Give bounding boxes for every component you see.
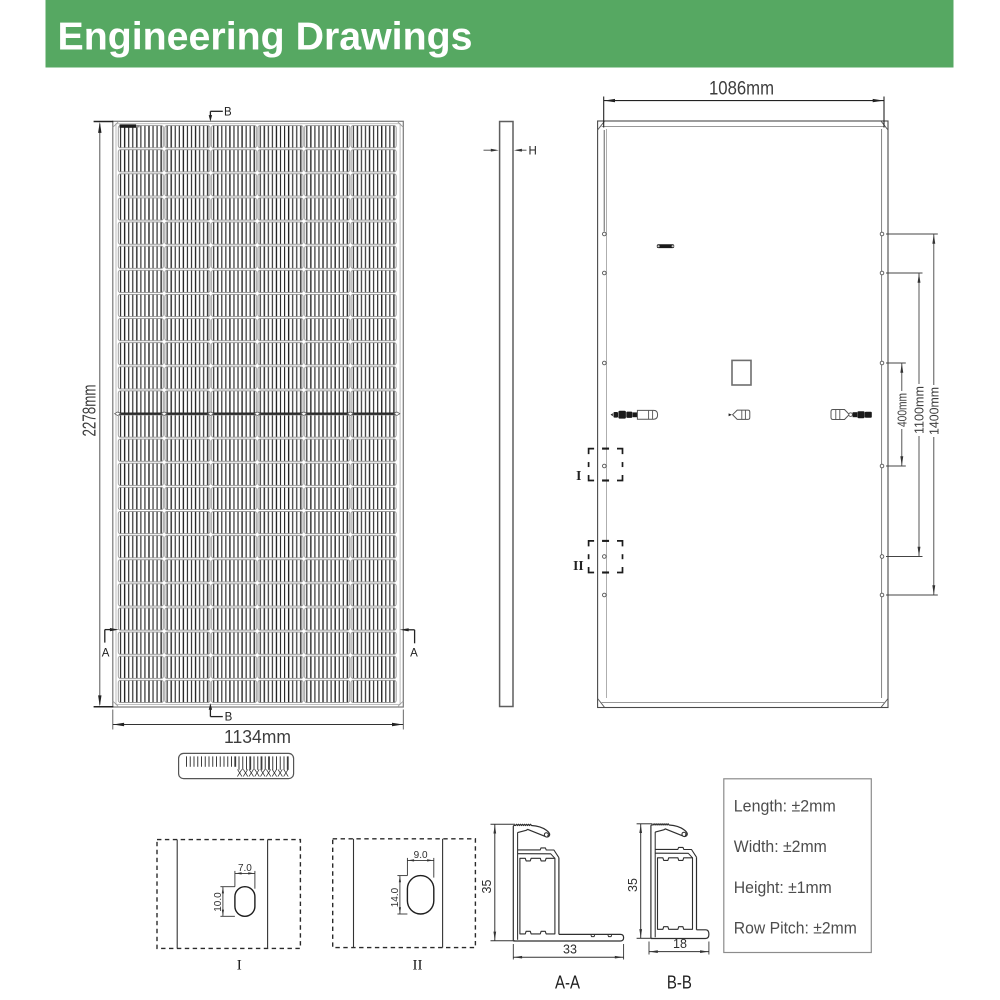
svg-text:2278mm: 2278mm [80, 385, 100, 437]
svg-text:14.0: 14.0 [390, 887, 401, 907]
svg-text:1134mm: 1134mm [224, 726, 291, 747]
svg-text:18: 18 [673, 937, 687, 951]
svg-text:7.0: 7.0 [238, 863, 252, 874]
svg-text:Height: ±1mm: Height: ±1mm [734, 878, 832, 897]
svg-text:10.0: 10.0 [213, 892, 224, 912]
svg-text:A-A: A-A [555, 973, 580, 993]
svg-text:B: B [224, 106, 232, 118]
svg-text:I: I [576, 468, 581, 483]
svg-text:II: II [413, 958, 423, 974]
svg-text:B-B: B-B [667, 973, 692, 993]
svg-text:Engineering Drawings: Engineering Drawings [58, 16, 473, 59]
svg-text:XXXXXXXXX: XXXXXXXXX [237, 769, 289, 780]
svg-text:I: I [237, 958, 242, 974]
svg-text:1086mm: 1086mm [709, 79, 774, 100]
svg-text:Row Pitch: ±2mm: Row Pitch: ±2mm [734, 919, 857, 938]
svg-text:B: B [225, 711, 233, 723]
svg-text:Width: ±2mm: Width: ±2mm [734, 837, 827, 856]
svg-text:H: H [529, 146, 537, 158]
svg-text:9.0: 9.0 [414, 850, 428, 861]
svg-text:35: 35 [480, 880, 494, 894]
svg-text:33: 33 [563, 942, 577, 956]
svg-text:1100mm: 1100mm [913, 386, 927, 434]
svg-text:400mm: 400mm [895, 393, 909, 427]
svg-text:1400mm: 1400mm [927, 387, 941, 435]
svg-text:II: II [573, 558, 584, 573]
svg-text:A: A [102, 647, 110, 659]
svg-text:35: 35 [626, 878, 640, 892]
svg-text:Length: ±2mm: Length: ±2mm [734, 796, 836, 815]
svg-text:A: A [410, 648, 418, 660]
